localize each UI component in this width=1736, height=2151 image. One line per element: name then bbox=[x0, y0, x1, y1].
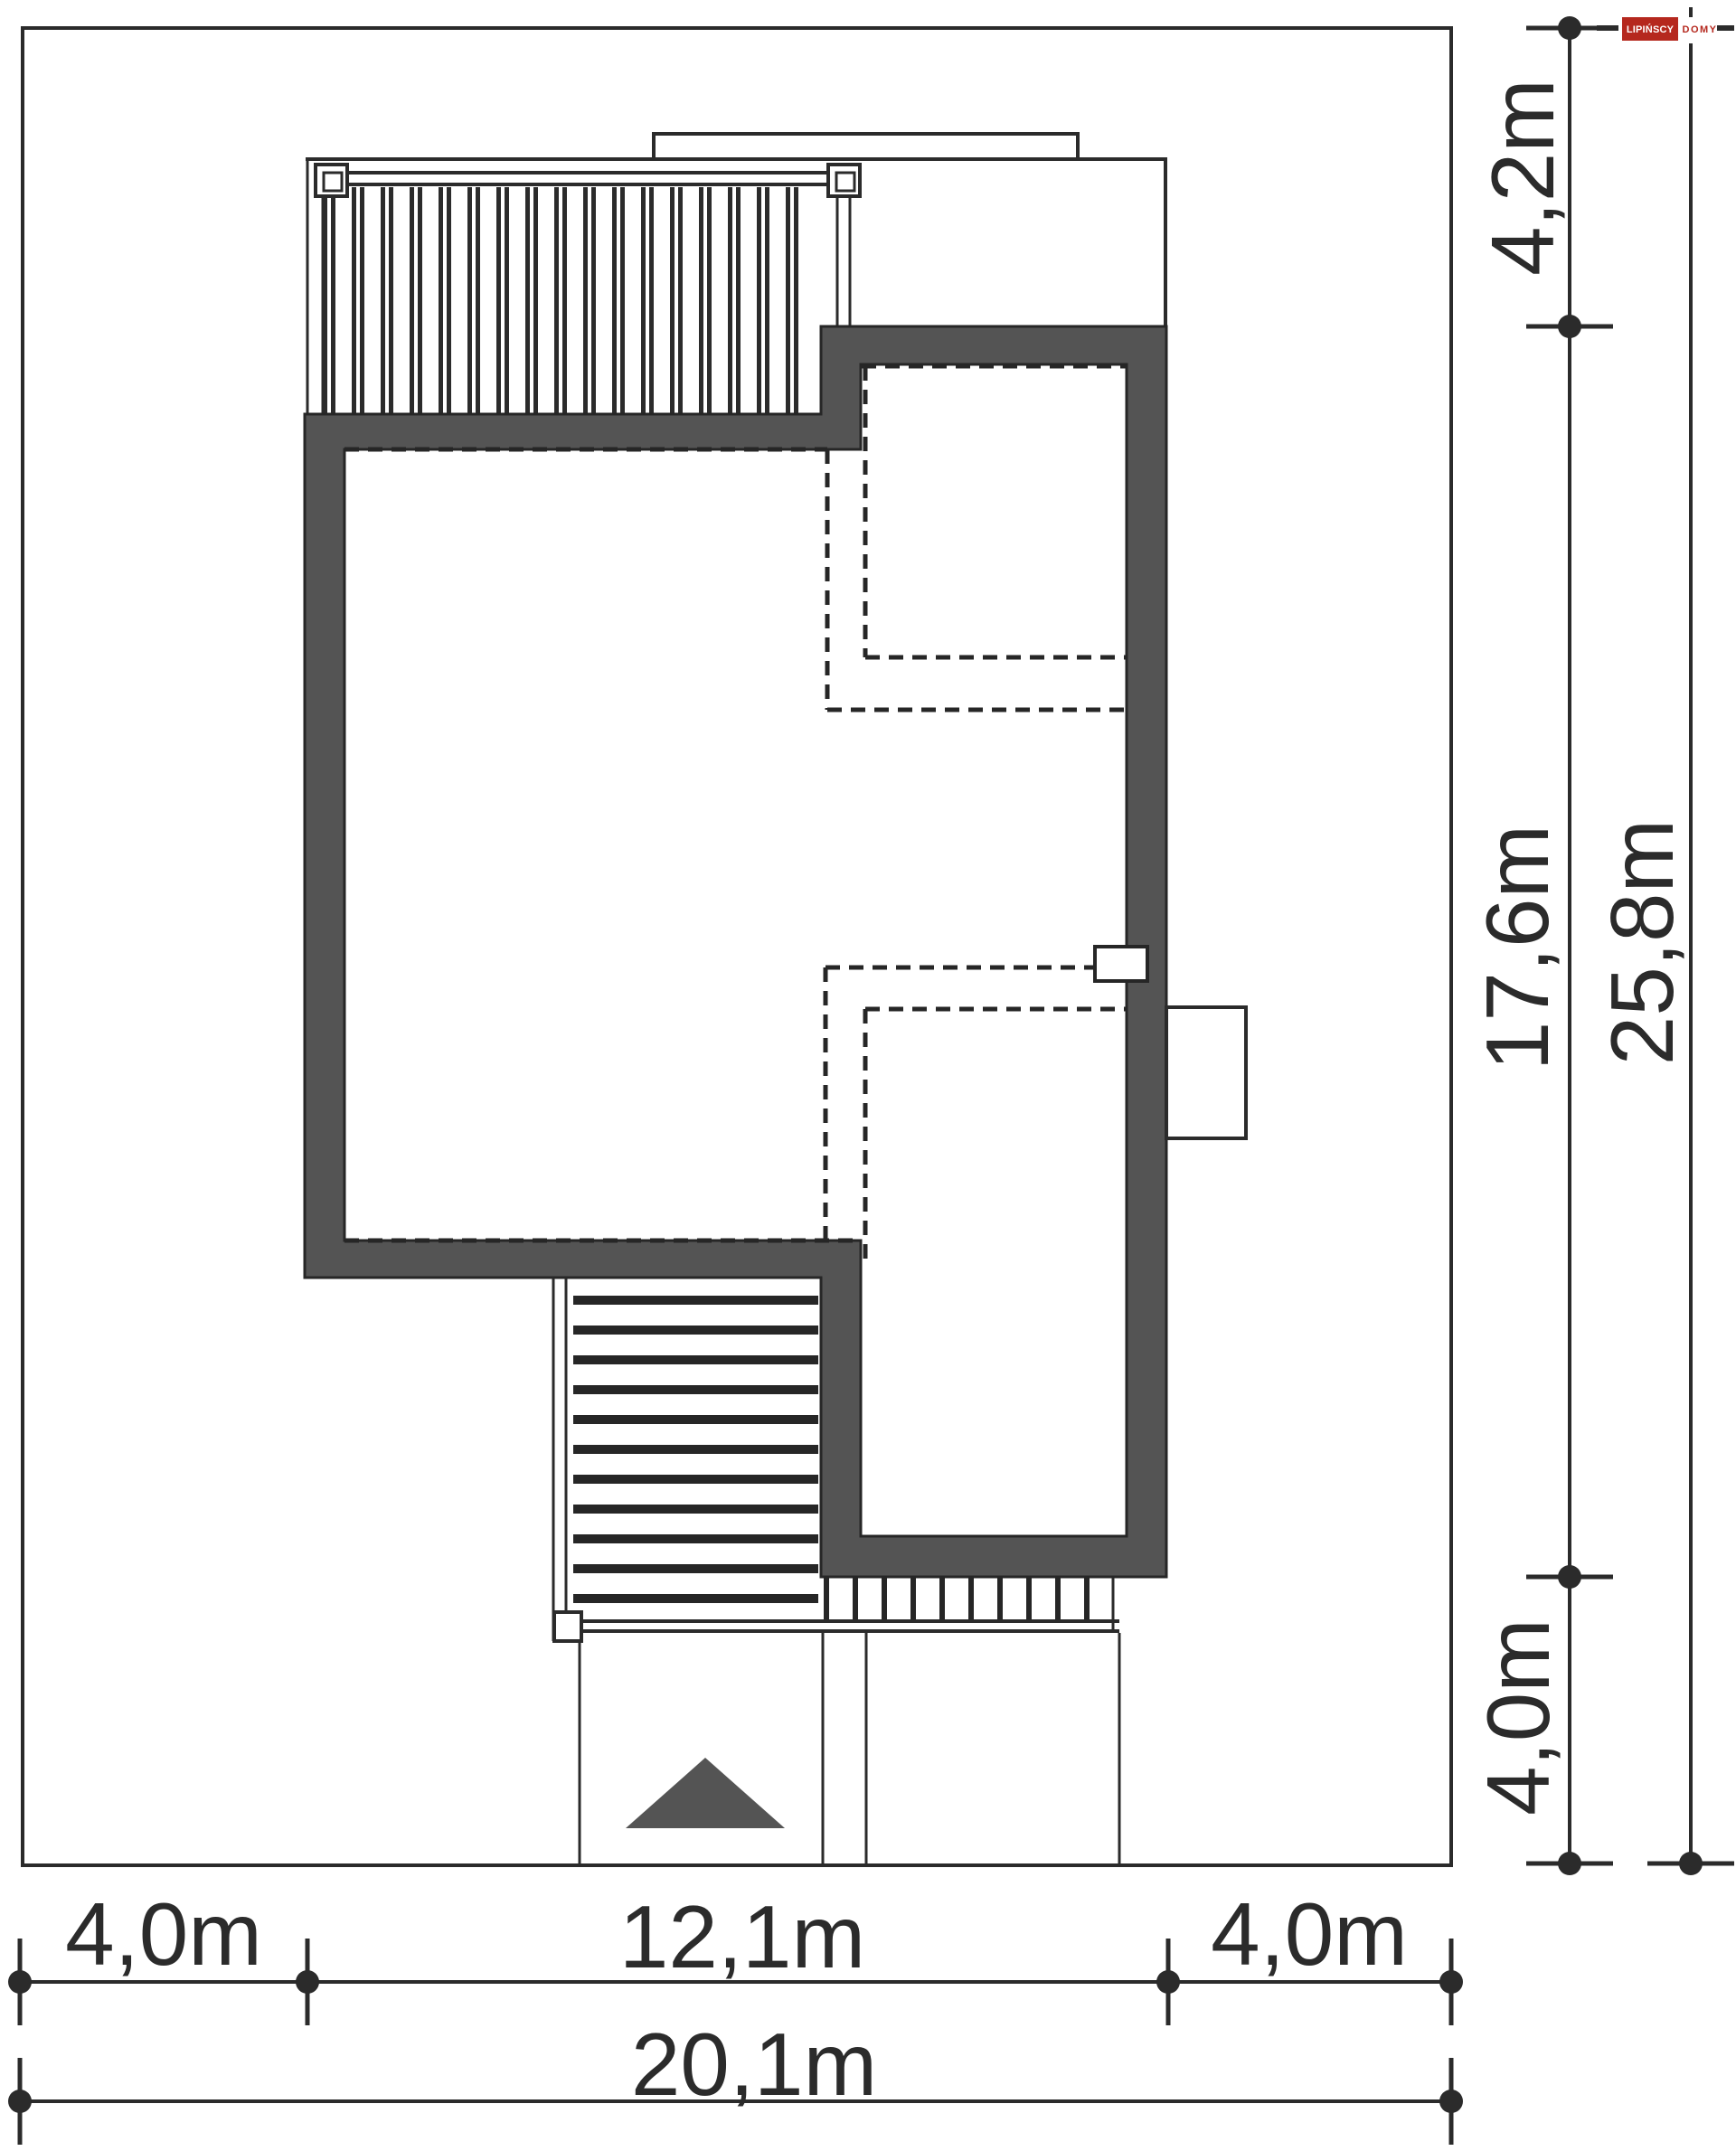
svg-text:4,0m: 4,0m bbox=[1468, 1618, 1568, 1816]
svg-text:4,2m: 4,2m bbox=[1473, 79, 1572, 276]
svg-text:DOMY: DOMY bbox=[1683, 24, 1718, 35]
svg-text:LIPIŃSCY: LIPIŃSCY bbox=[1627, 24, 1675, 35]
svg-text:20,1m: 20,1m bbox=[631, 2014, 877, 2114]
svg-text:4,0m: 4,0m bbox=[1211, 1884, 1408, 1984]
svg-text:12,1m: 12,1m bbox=[619, 1887, 865, 1986]
svg-text:25,8m: 25,8m bbox=[1592, 819, 1692, 1065]
svg-text:4,0m: 4,0m bbox=[65, 1884, 262, 1984]
svg-text:17,6m: 17,6m bbox=[1467, 825, 1567, 1071]
